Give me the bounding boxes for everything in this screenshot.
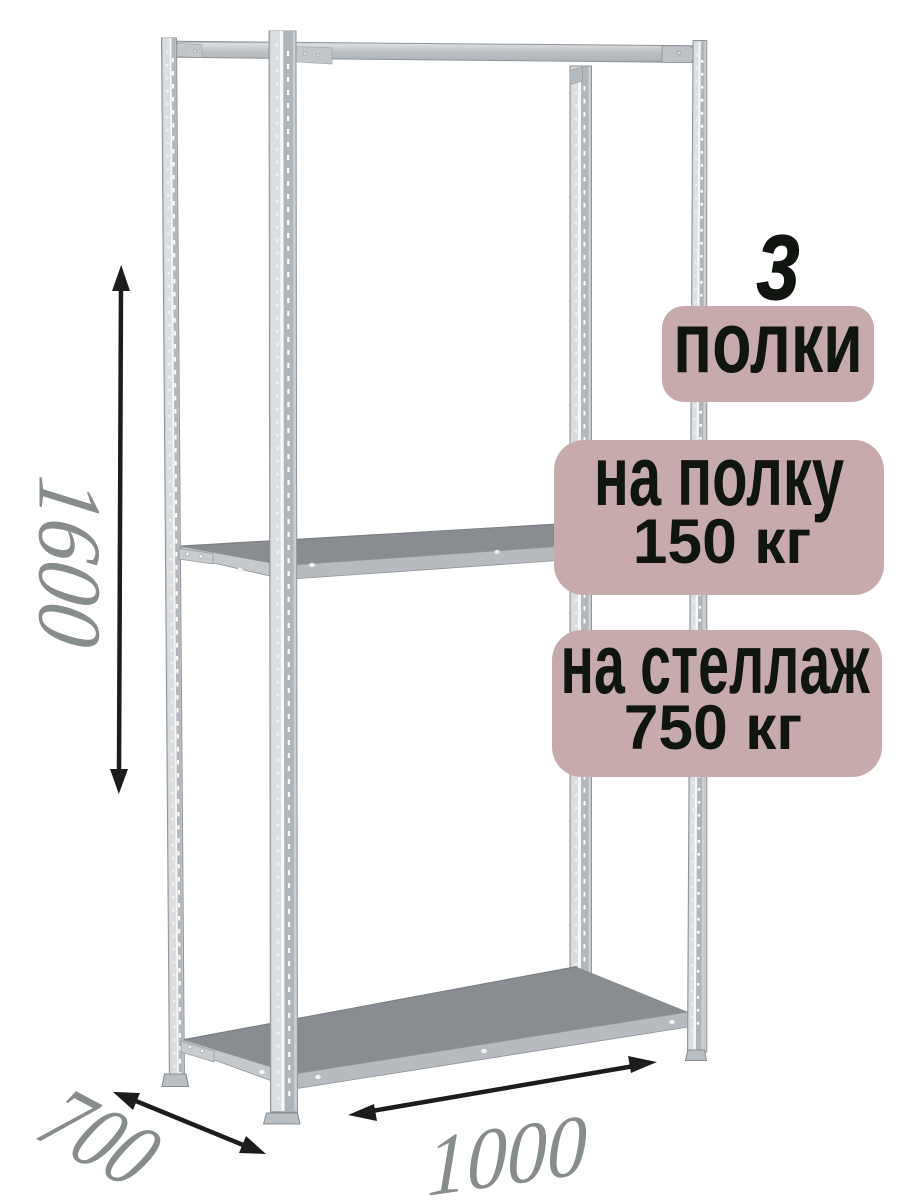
svg-text:полки: полки xyxy=(673,295,863,391)
svg-text:150 кг: 150 кг xyxy=(633,507,812,577)
svg-text:750 кг: 750 кг xyxy=(624,693,803,763)
svg-text:1600: 1600 xyxy=(20,471,120,653)
